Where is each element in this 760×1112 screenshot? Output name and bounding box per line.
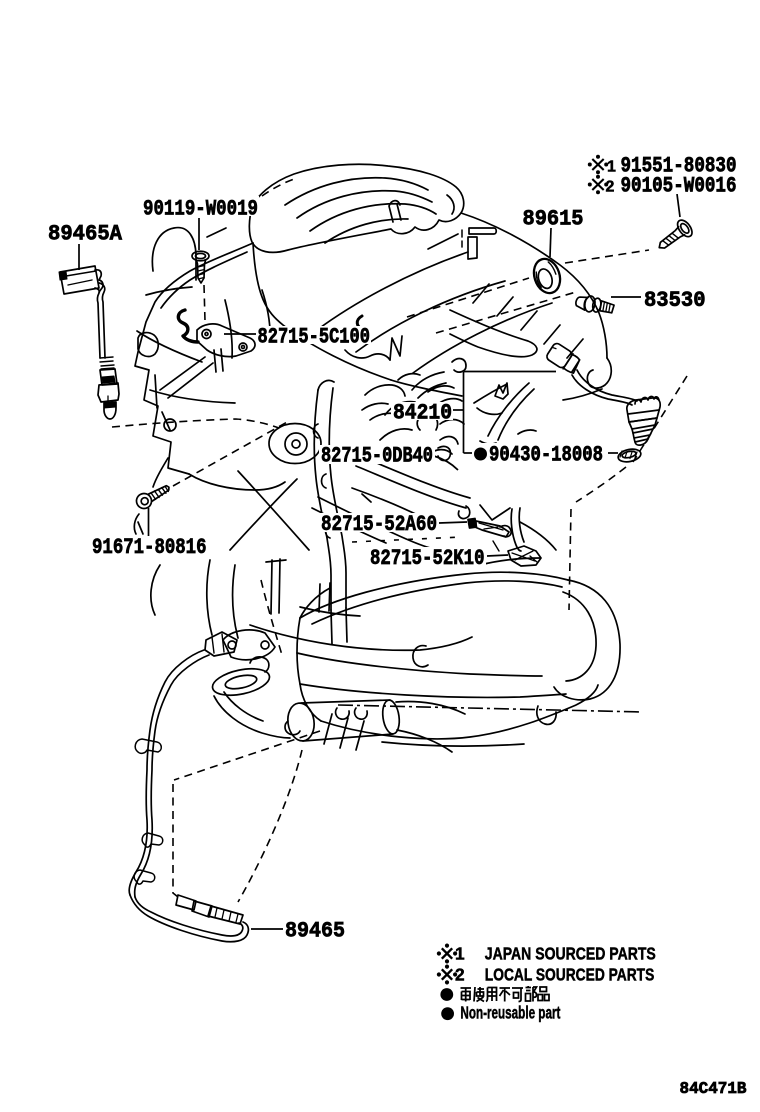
svg-text:90430-18008: 90430-18008 <box>489 442 603 467</box>
svg-text:JAPAN SOURCED PARTS: JAPAN SOURCED PARTS <box>485 944 656 964</box>
svg-text:84210: 84210 <box>393 401 452 426</box>
svg-text:83530: 83530 <box>644 288 706 313</box>
svg-text:1: 1 <box>607 159 616 176</box>
svg-text:LOCAL SOURCED PARTS: LOCAL SOURCED PARTS <box>485 965 655 985</box>
svg-text:89465A: 89465A <box>48 222 123 247</box>
svg-text:89465: 89465 <box>285 919 345 944</box>
svg-text:82715-52K10: 82715-52K10 <box>370 546 485 571</box>
svg-text:82715-5C100: 82715-5C100 <box>258 325 371 350</box>
svg-text:89615: 89615 <box>523 207 584 232</box>
svg-text:90105-W0016: 90105-W0016 <box>621 173 737 198</box>
svg-text:2: 2 <box>455 965 465 985</box>
svg-text:2: 2 <box>606 178 615 195</box>
svg-text:1: 1 <box>455 944 465 964</box>
svg-text:82715-52A60: 82715-52A60 <box>321 512 437 537</box>
svg-text:91671-80816: 91671-80816 <box>92 535 207 560</box>
svg-text:84C471B: 84C471B <box>680 1080 747 1099</box>
svg-text:Non-reusable part: Non-reusable part <box>460 1002 560 1022</box>
svg-text:90119-W0019: 90119-W0019 <box>143 196 258 221</box>
svg-text:82715-0DB40: 82715-0DB40 <box>321 444 433 469</box>
